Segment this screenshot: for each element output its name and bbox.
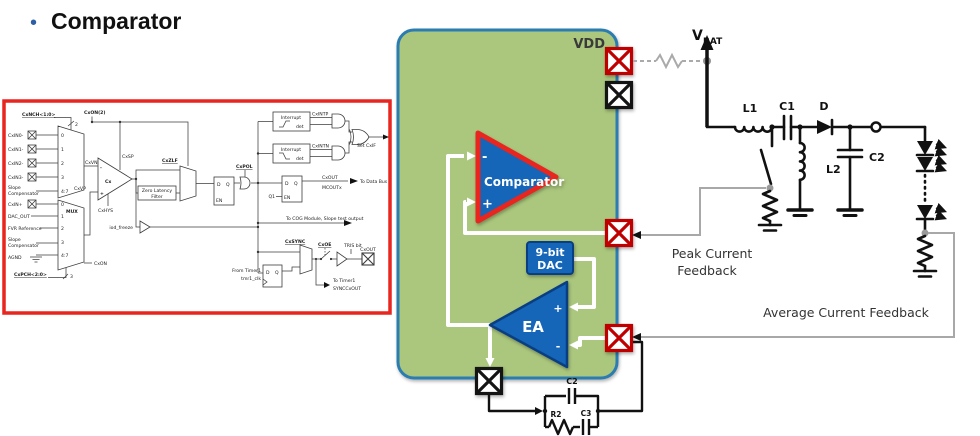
label-det2: det bbox=[296, 156, 304, 162]
label-cx: Cx bbox=[105, 179, 111, 185]
pin-top-black bbox=[607, 83, 632, 108]
label-tris-bit: TRIS bit bbox=[343, 243, 362, 249]
mux2-47: 4:7 bbox=[61, 253, 68, 259]
mcu-chip: VDD Comparator - + bbox=[398, 30, 617, 378]
peak-feedback-wire bbox=[636, 188, 766, 235]
label-cxpol: CxPOL bbox=[236, 164, 253, 170]
label-mux: MUX bbox=[66, 209, 78, 215]
ff1-en: EN bbox=[216, 198, 222, 204]
led-2 bbox=[917, 157, 933, 171]
ff1-d: D bbox=[217, 182, 221, 188]
comp-capacitor-c2 bbox=[569, 388, 575, 404]
label-cxout-databus: CxOUT bbox=[322, 175, 338, 181]
ea-plus: + bbox=[553, 302, 562, 315]
label-cxin1: CxIN1- bbox=[8, 147, 24, 153]
mux1-1: 1 bbox=[61, 147, 64, 153]
mux2-3: 3 bbox=[61, 240, 64, 246]
led-string bbox=[914, 141, 944, 277]
inductor-l2-branch bbox=[788, 127, 812, 216]
label-cxpch: CxPCH<2:0> bbox=[14, 272, 47, 278]
vdd-label: VDD bbox=[573, 37, 605, 52]
label-int2: Interrupt bbox=[281, 147, 301, 153]
dac-line2: DAC bbox=[537, 259, 563, 272]
label-to-timer1: To Timer1 bbox=[332, 278, 355, 284]
pin-vdd-red bbox=[607, 49, 632, 74]
pin-ea-output bbox=[477, 369, 502, 394]
inductor-l2 bbox=[800, 143, 805, 180]
vbat-label: V bbox=[692, 28, 703, 44]
label-cxoe: CxOE bbox=[318, 242, 331, 248]
vdd-to-vbat-link bbox=[633, 55, 711, 67]
label-bus3: 3 bbox=[70, 274, 73, 280]
mux1-0: 0 bbox=[61, 133, 64, 139]
output-node-circle bbox=[872, 123, 881, 132]
label-cxintp: CxINTP bbox=[312, 112, 329, 118]
label-cxvn: CxVN bbox=[85, 160, 98, 166]
label-setcxif: Set CxIF bbox=[357, 143, 376, 149]
label-peak-2: Feedback bbox=[677, 263, 737, 278]
pin-avg-feedback bbox=[607, 326, 632, 351]
label-slope2a: Slope bbox=[8, 237, 21, 243]
label-dacout: DAC_OUT bbox=[8, 214, 30, 220]
diagram: CxNCH<1:0> 2 CxON(2) CxIN0- CxIN1- CxIN2… bbox=[0, 0, 980, 436]
label-d: D bbox=[819, 100, 828, 113]
slide: • Comparator bbox=[0, 0, 980, 436]
comp-plus-small: + bbox=[100, 191, 104, 197]
label-peak-1: Peak Current bbox=[672, 246, 753, 261]
inductor-l1 bbox=[735, 127, 772, 132]
label-bus2: 2 bbox=[75, 122, 78, 128]
label-int1: Interrupt bbox=[281, 115, 301, 121]
label-slope1a: Slope bbox=[8, 185, 21, 191]
mux1-3: 3 bbox=[61, 175, 64, 181]
led-3 bbox=[917, 205, 933, 219]
switch bbox=[761, 150, 771, 184]
label-iod-freeze: iod_freeze bbox=[109, 225, 133, 231]
top-rail bbox=[707, 116, 925, 141]
label-det1: det bbox=[296, 124, 304, 130]
interrupt-rising-box bbox=[273, 112, 310, 131]
label-cxin0: CxIN0- bbox=[8, 133, 24, 139]
label-cxhys: CxHYS bbox=[98, 208, 113, 214]
comp-capacitor-c3 bbox=[583, 419, 589, 435]
label-cxsp: CxSP bbox=[122, 154, 134, 160]
label-agnd: AGND bbox=[8, 255, 22, 261]
label-synccxout: SYNCCxOUT bbox=[333, 286, 361, 292]
label-l2: L2 bbox=[826, 163, 841, 176]
label-tmr1clk: tmr1_clk bbox=[241, 276, 261, 282]
comp-minus-small: - bbox=[100, 166, 102, 171]
label-avg-feedback: Average Current Feedback bbox=[763, 305, 930, 320]
and-gate-2 bbox=[332, 146, 345, 160]
diode-d bbox=[817, 120, 832, 134]
ea-label: EA bbox=[522, 318, 544, 336]
mux2-0: 0 bbox=[61, 202, 64, 208]
label-cxnch: CxNCH<1:0> bbox=[22, 112, 55, 118]
dac-block: 9-bit DAC bbox=[527, 242, 573, 274]
label-q1: Q1 bbox=[268, 194, 275, 200]
avg-arrowhead bbox=[632, 333, 641, 341]
fft-d: D bbox=[266, 270, 270, 276]
label-cxon: CxON bbox=[94, 261, 107, 267]
label-cxvp: CxVP bbox=[74, 186, 86, 192]
label-cxzlf: CxZLF bbox=[162, 158, 178, 164]
comp-arrowhead bbox=[535, 407, 543, 415]
switch-branch bbox=[759, 127, 781, 231]
label-from-timer1: From Timer1 bbox=[232, 268, 261, 274]
label-cxin3: CxIN3- bbox=[8, 175, 24, 181]
label-c2: C2 bbox=[869, 151, 885, 164]
label-zlf1: Zero Latency bbox=[142, 188, 172, 194]
comparator-peripheral-detail-panel: CxNCH<1:0> 2 CxON(2) CxIN0- CxIN1- CxIN2… bbox=[4, 101, 390, 313]
avg-sense-resistor bbox=[918, 236, 932, 266]
label-cxsync: CxSYNC bbox=[285, 239, 306, 245]
peak-sense-resistor bbox=[763, 191, 777, 221]
label-c1: C1 bbox=[779, 100, 795, 113]
peak-arrowhead bbox=[632, 231, 641, 239]
label-l1: L1 bbox=[743, 102, 758, 115]
label-comp-r2: R2 bbox=[551, 410, 562, 419]
timer-sync-ff bbox=[263, 265, 282, 287]
pin-peak-feedback bbox=[607, 221, 632, 246]
sync-mux bbox=[300, 245, 312, 274]
label-cxinp: CxIN+ bbox=[8, 202, 23, 208]
capacitor-c2-branch bbox=[838, 127, 862, 216]
ff1-q: Q bbox=[226, 182, 230, 188]
label-fvr: FVR Reference bbox=[8, 226, 42, 232]
label-slope2b: Compensator bbox=[8, 243, 39, 249]
interrupt-falling-box bbox=[273, 144, 310, 163]
ff2-en: EN bbox=[284, 195, 290, 201]
label-cxon-top: CxON(2) bbox=[84, 110, 105, 116]
label-mcoutx: MCOUTx bbox=[322, 185, 342, 191]
gray-resistor-icon bbox=[656, 55, 682, 67]
comparator-minus: - bbox=[482, 150, 487, 165]
label-comp-c3: C3 bbox=[581, 409, 592, 418]
label-cxin2: CxIN2- bbox=[8, 161, 24, 167]
and-gate-1 bbox=[332, 114, 345, 128]
mux1-2: 2 bbox=[61, 161, 64, 167]
vbat-source: V BAT bbox=[692, 28, 723, 127]
ea-minus: - bbox=[556, 340, 561, 353]
comparator-plus: + bbox=[482, 197, 493, 212]
led-light-arrows bbox=[936, 144, 944, 218]
label-cxout-pin: CxOUT bbox=[360, 247, 376, 253]
label-slope1b: Compensator bbox=[8, 191, 39, 197]
mux2-2: 2 bbox=[61, 226, 64, 232]
ff2-d: D bbox=[285, 181, 289, 187]
label-cxintn: CxINTN bbox=[312, 144, 329, 150]
label-to-cog: To COG Module, Slope test output bbox=[285, 216, 364, 222]
zlf-mux bbox=[180, 166, 196, 201]
mux2-1: 1 bbox=[61, 214, 64, 220]
mux1-47: 4:7 bbox=[61, 189, 68, 195]
dac-line1: 9-bit bbox=[535, 246, 564, 259]
label-comp-c2: C2 bbox=[566, 377, 577, 386]
comparator-label: Comparator bbox=[484, 175, 564, 189]
led-1 bbox=[917, 141, 933, 155]
vbat-sub: BAT bbox=[703, 37, 723, 47]
label-to-data-bus: To Data Bus bbox=[359, 179, 388, 185]
ff2-q: Q bbox=[294, 181, 298, 187]
fft-q: Q bbox=[275, 270, 279, 276]
label-zlf2: Filter bbox=[151, 194, 162, 200]
comp-resistor-r2 bbox=[549, 420, 573, 434]
cxpol-xor-gate bbox=[240, 177, 250, 189]
